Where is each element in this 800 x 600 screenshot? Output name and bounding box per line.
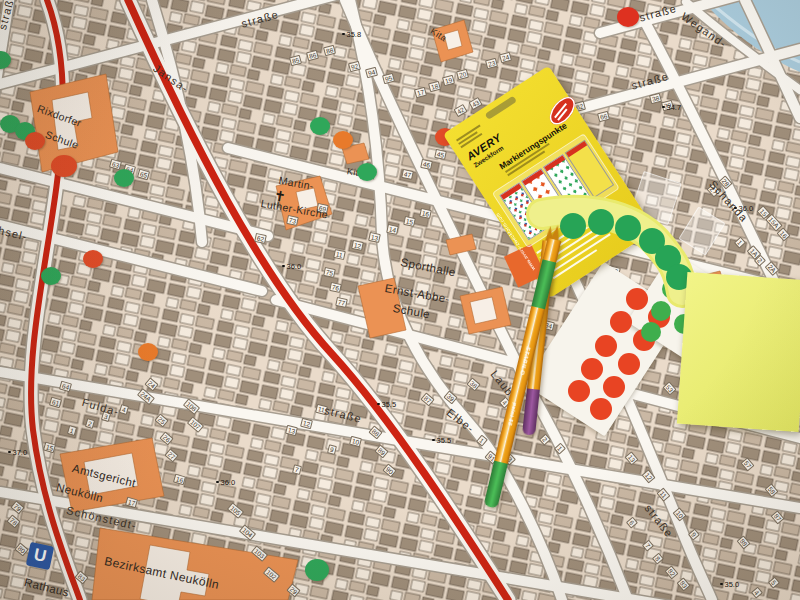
- pen-model-text: point 88: [507, 402, 518, 426]
- map-photo: straßeJansa-straßehsel-Fulda-straßeElbe-…: [0, 0, 800, 600]
- green-dot-strip: [0, 0, 800, 600]
- pen-brand-text: STABILO: [519, 346, 532, 376]
- sticky-note: [677, 272, 800, 432]
